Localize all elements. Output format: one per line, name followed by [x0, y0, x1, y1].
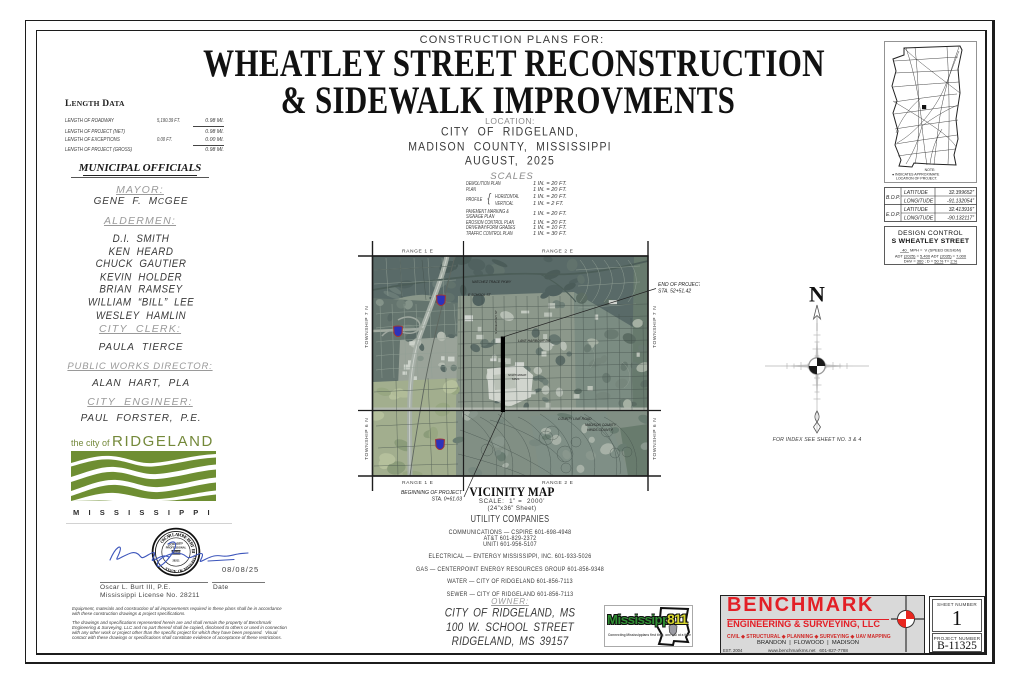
- svg-text:LONGITUDE: LONGITUDE: [904, 216, 934, 222]
- svg-text:MADISON COUNTY: MADISON COUNTY: [585, 423, 617, 427]
- svg-text:TOWNSHIP 7 N: TOWNSHIP 7 N: [364, 306, 370, 348]
- svg-text:MALL: MALL: [512, 377, 520, 381]
- svg-text:E.O.P.: E.O.P.: [886, 212, 900, 218]
- svg-text:COUNTY LINE ROAD: COUNTY LINE ROAD: [558, 417, 592, 421]
- svg-text:32.399652”: 32.399652”: [949, 190, 975, 196]
- svg-text:N: N: [809, 283, 825, 307]
- svg-text:DHV = 360 ; D = 50 % T= 2 %: DHV = 360 ; D = 50 % T= 2 %: [904, 259, 958, 264]
- svg-text:STA. 52+51.42: STA. 52+51.42: [658, 289, 691, 295]
- svg-text:LONGITUDE: LONGITUDE: [904, 199, 934, 205]
- svg-text:E SCHOOL ST: E SCHOOL ST: [468, 293, 492, 297]
- svg-text:40 MPH = V (SPEED DESIGN): 40 MPH = V (SPEED DESIGN): [900, 248, 962, 253]
- svg-text:END OF PROJECT: END OF PROJECT: [658, 282, 700, 288]
- svg-text:HINDS COUNTY: HINDS COUNTY: [587, 428, 614, 432]
- svg-text:NATCHEZ TRACE PKWY: NATCHEZ TRACE PKWY: [472, 280, 512, 284]
- svg-text:LAKE HARBOUR DR: LAKE HARBOUR DR: [518, 339, 551, 343]
- svg-text:TOWNSHIP 7 N: TOWNSHIP 7 N: [652, 306, 658, 348]
- svg-text:TOWNSHIP 6 N: TOWNSHIP 6 N: [364, 418, 370, 460]
- svg-text:TOWNSHIP 6 N: TOWNSHIP 6 N: [652, 418, 658, 460]
- svg-text:LATITUDE: LATITUDE: [904, 190, 928, 196]
- svg-text:NOTE:: NOTE:: [925, 168, 936, 172]
- svg-text:32.413916”: 32.413916”: [949, 207, 975, 213]
- svg-text:RANGE 2 E: RANGE 2 E: [542, 249, 574, 255]
- svg-text:RANGE 1 E: RANGE 1 E: [402, 249, 434, 255]
- svg-text:LATITUDE: LATITUDE: [904, 207, 928, 213]
- svg-text:-90.132117”: -90.132117”: [947, 216, 974, 222]
- svg-text:LOCATION OF PROJECT.: LOCATION OF PROJECT.: [896, 177, 938, 181]
- svg-text:DESIGN CONTROL: DESIGN CONTROL: [898, 230, 963, 237]
- svg-text:-91.132054”: -91.132054”: [947, 199, 974, 205]
- svg-text:S WHEATLEY ST: S WHEATLEY ST: [494, 309, 498, 334]
- svg-text:B.O.P.: B.O.P.: [886, 195, 900, 201]
- svg-text:S WHEATLEY STREET: S WHEATLEY STREET: [892, 238, 970, 245]
